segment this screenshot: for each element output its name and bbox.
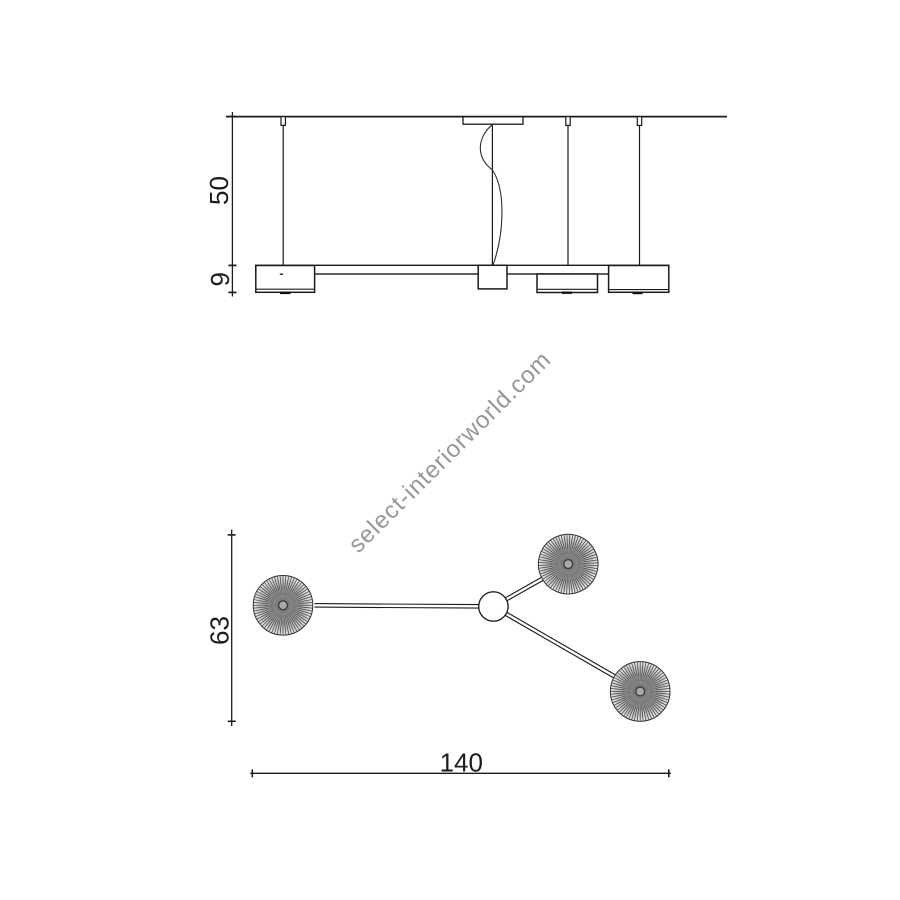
svg-text:select-interiorworld.com: select-interiorworld.com — [343, 346, 556, 558]
svg-text:9: 9 — [205, 272, 235, 286]
svg-text:140: 140 — [440, 748, 483, 778]
svg-text:63: 63 — [204, 616, 234, 645]
svg-text:50: 50 — [204, 176, 234, 205]
